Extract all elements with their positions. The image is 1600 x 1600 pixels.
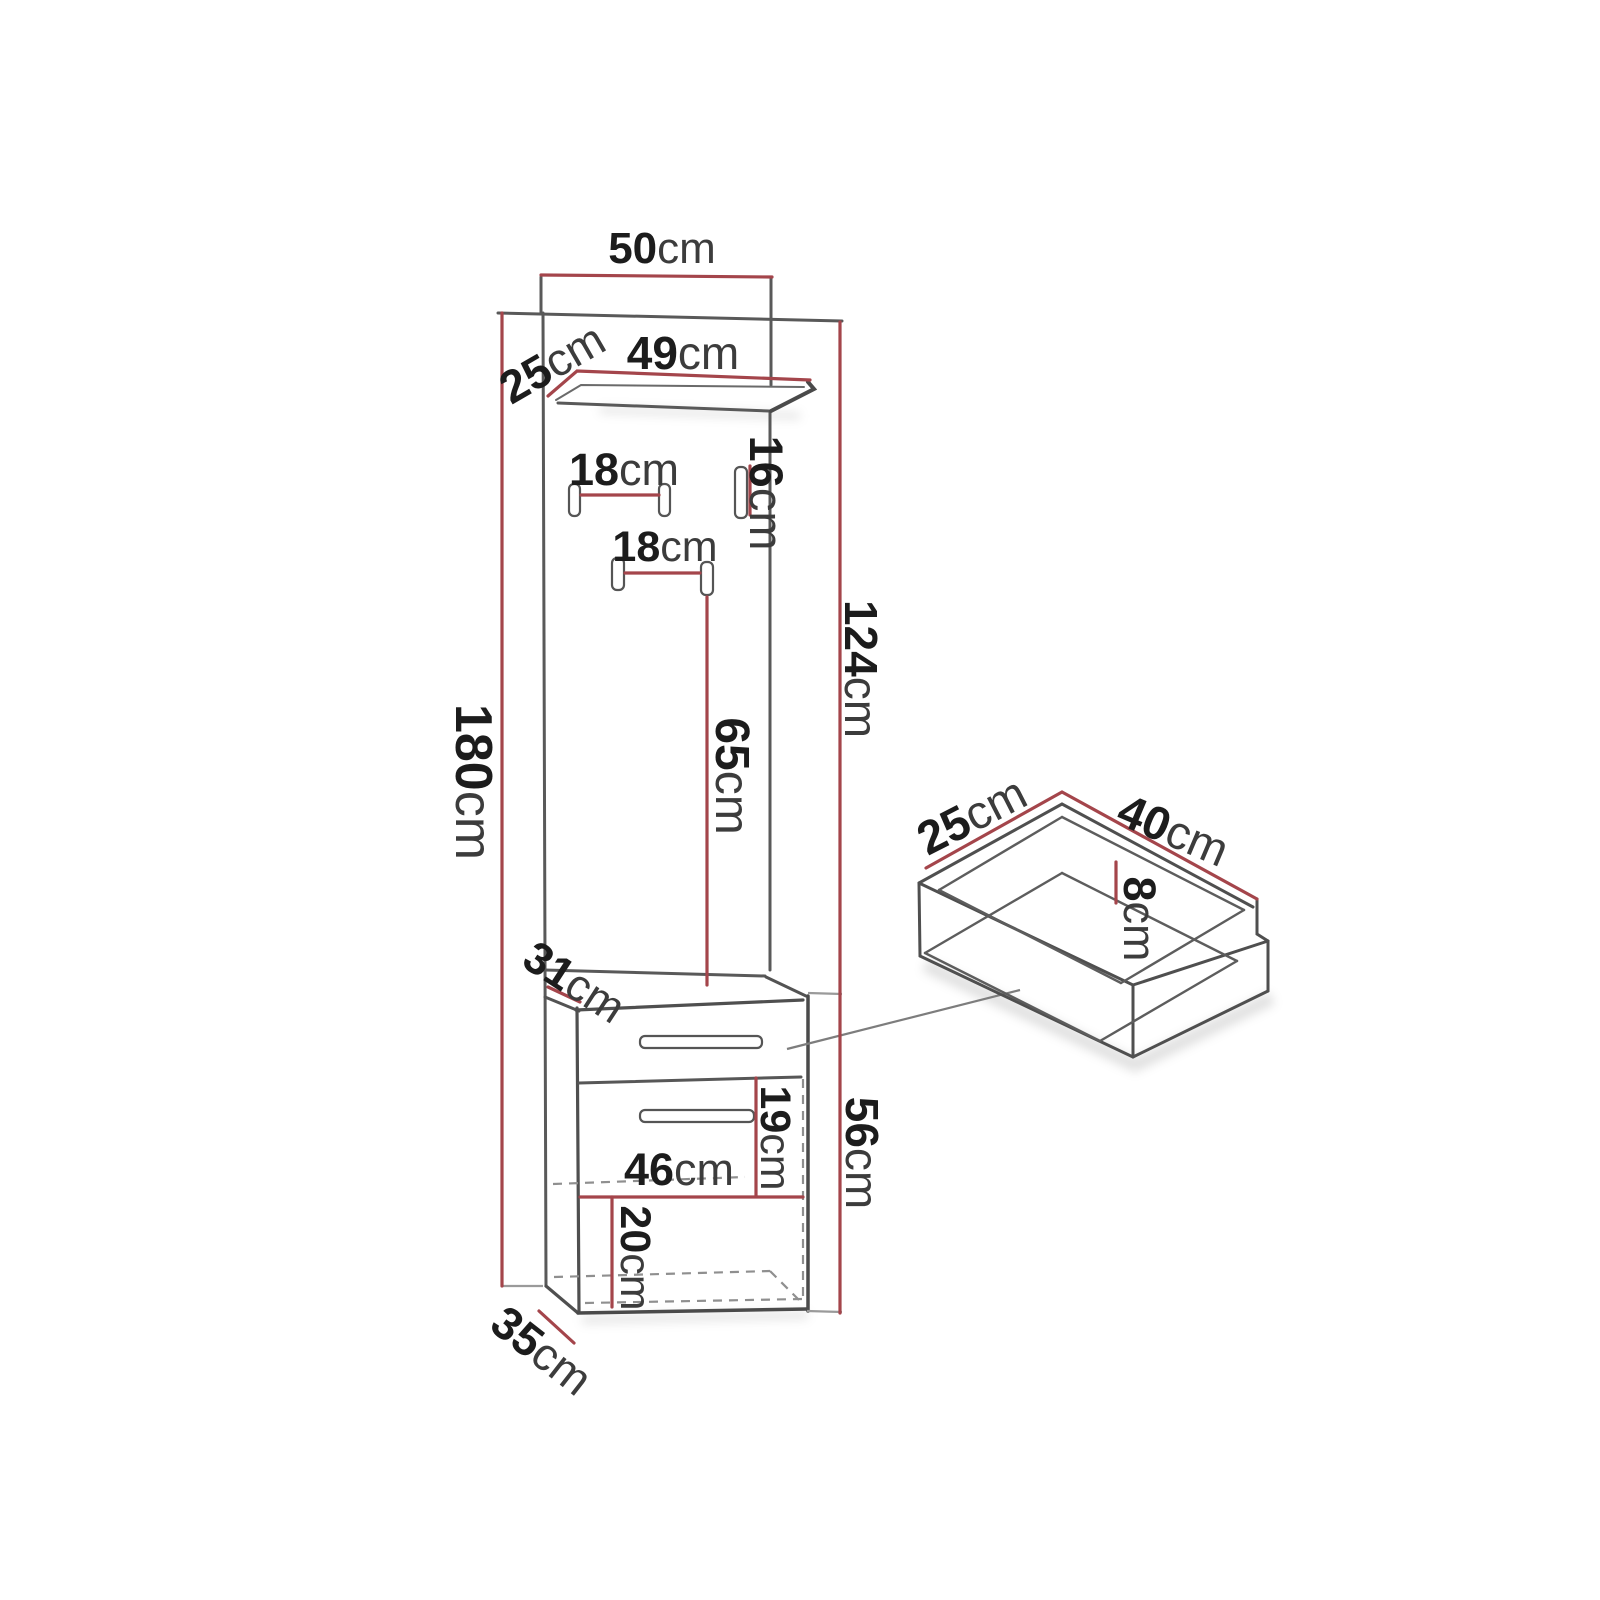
svg-text:18cm: 18cm bbox=[569, 444, 679, 495]
svg-text:49cm: 49cm bbox=[627, 327, 740, 379]
svg-text:16cm: 16cm bbox=[740, 436, 793, 551]
svg-text:31cm: 31cm bbox=[514, 931, 634, 1034]
svg-text:46cm: 46cm bbox=[624, 1144, 734, 1195]
svg-text:20cm: 20cm bbox=[611, 1205, 659, 1310]
svg-text:56cm: 56cm bbox=[836, 1097, 888, 1210]
svg-text:65cm: 65cm bbox=[705, 717, 758, 834]
svg-text:124cm: 124cm bbox=[835, 600, 887, 738]
svg-text:8cm: 8cm bbox=[1114, 876, 1165, 961]
svg-text:25cm: 25cm bbox=[490, 313, 613, 414]
svg-text:19cm: 19cm bbox=[751, 1085, 799, 1190]
svg-text:180cm: 180cm bbox=[444, 704, 502, 860]
svg-text:50cm: 50cm bbox=[608, 224, 716, 273]
svg-text:18cm: 18cm bbox=[612, 523, 717, 571]
svg-text:25cm: 25cm bbox=[908, 766, 1034, 865]
